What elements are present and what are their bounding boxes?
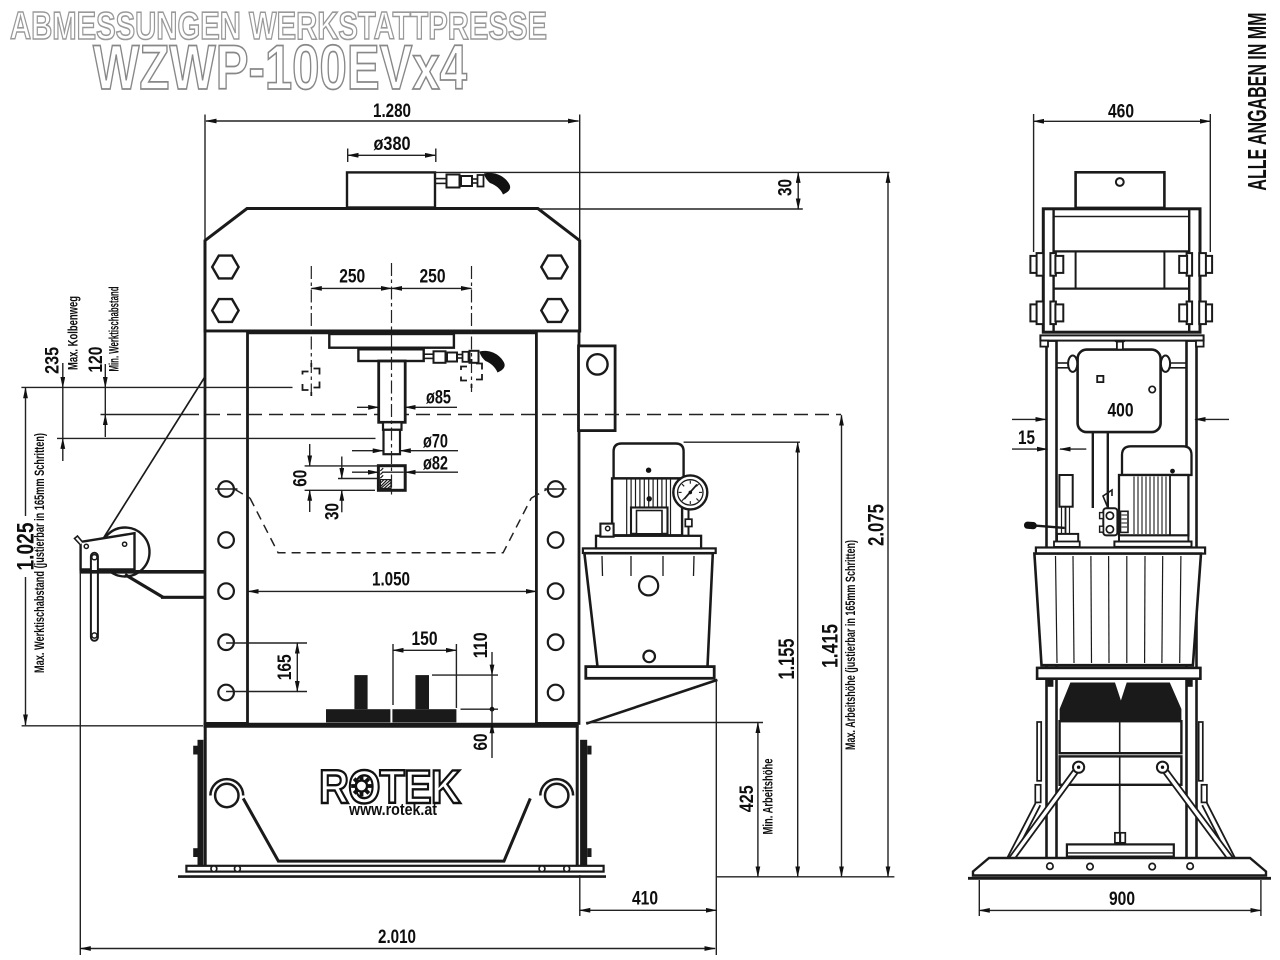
svg-text:Max. Arbeitshöhe (justierbar i: Max. Arbeitshöhe (justierbar in 165mm Sc… [842,540,858,750]
svg-text:Min. Werktischabstand: Min. Werktischabstand [106,287,122,372]
svg-text:150: 150 [412,629,438,650]
svg-text:1.415: 1.415 [817,624,842,668]
svg-text:1.050: 1.050 [372,570,410,591]
svg-text:400: 400 [1108,401,1134,422]
svg-text:235: 235 [43,347,64,374]
svg-text:120: 120 [86,347,107,373]
svg-text:Max. Kolbenweg: Max. Kolbenweg [65,296,81,370]
svg-text:460: 460 [1108,102,1134,123]
svg-text:410: 410 [632,889,658,910]
svg-text:Max. Werktischabstand (justier: Max. Werktischabstand (justierbar in 165… [31,433,47,673]
svg-text:ø380: ø380 [374,134,411,155]
svg-text:1.155: 1.155 [774,639,799,680]
svg-text:2.075: 2.075 [864,504,889,546]
svg-text:425: 425 [737,785,758,812]
svg-text:Min. Arbeitshöhe: Min. Arbeitshöhe [760,758,776,834]
svg-text:ø82: ø82 [423,454,448,475]
svg-text:1.280: 1.280 [373,101,411,122]
svg-text:ø85: ø85 [426,388,451,409]
svg-text:250: 250 [420,266,446,287]
svg-text:250: 250 [339,266,365,287]
svg-text:165: 165 [275,654,296,680]
svg-text:www.rotek.at: www.rotek.at [348,801,437,819]
svg-text:30: 30 [323,503,344,520]
svg-text:900: 900 [1109,889,1135,910]
svg-text:60: 60 [290,470,311,487]
svg-text:WZWP-100EVx4: WZWP-100EVx4 [93,33,467,103]
svg-text:15: 15 [1018,428,1035,449]
svg-text:30: 30 [776,179,797,196]
svg-text:ALLE ANGABEN IN MM: ALLE ANGABEN IN MM [1242,13,1272,191]
svg-text:60: 60 [471,734,492,751]
svg-text:ø70: ø70 [423,432,448,453]
svg-text:2.010: 2.010 [378,927,416,948]
svg-text:110: 110 [471,632,492,658]
